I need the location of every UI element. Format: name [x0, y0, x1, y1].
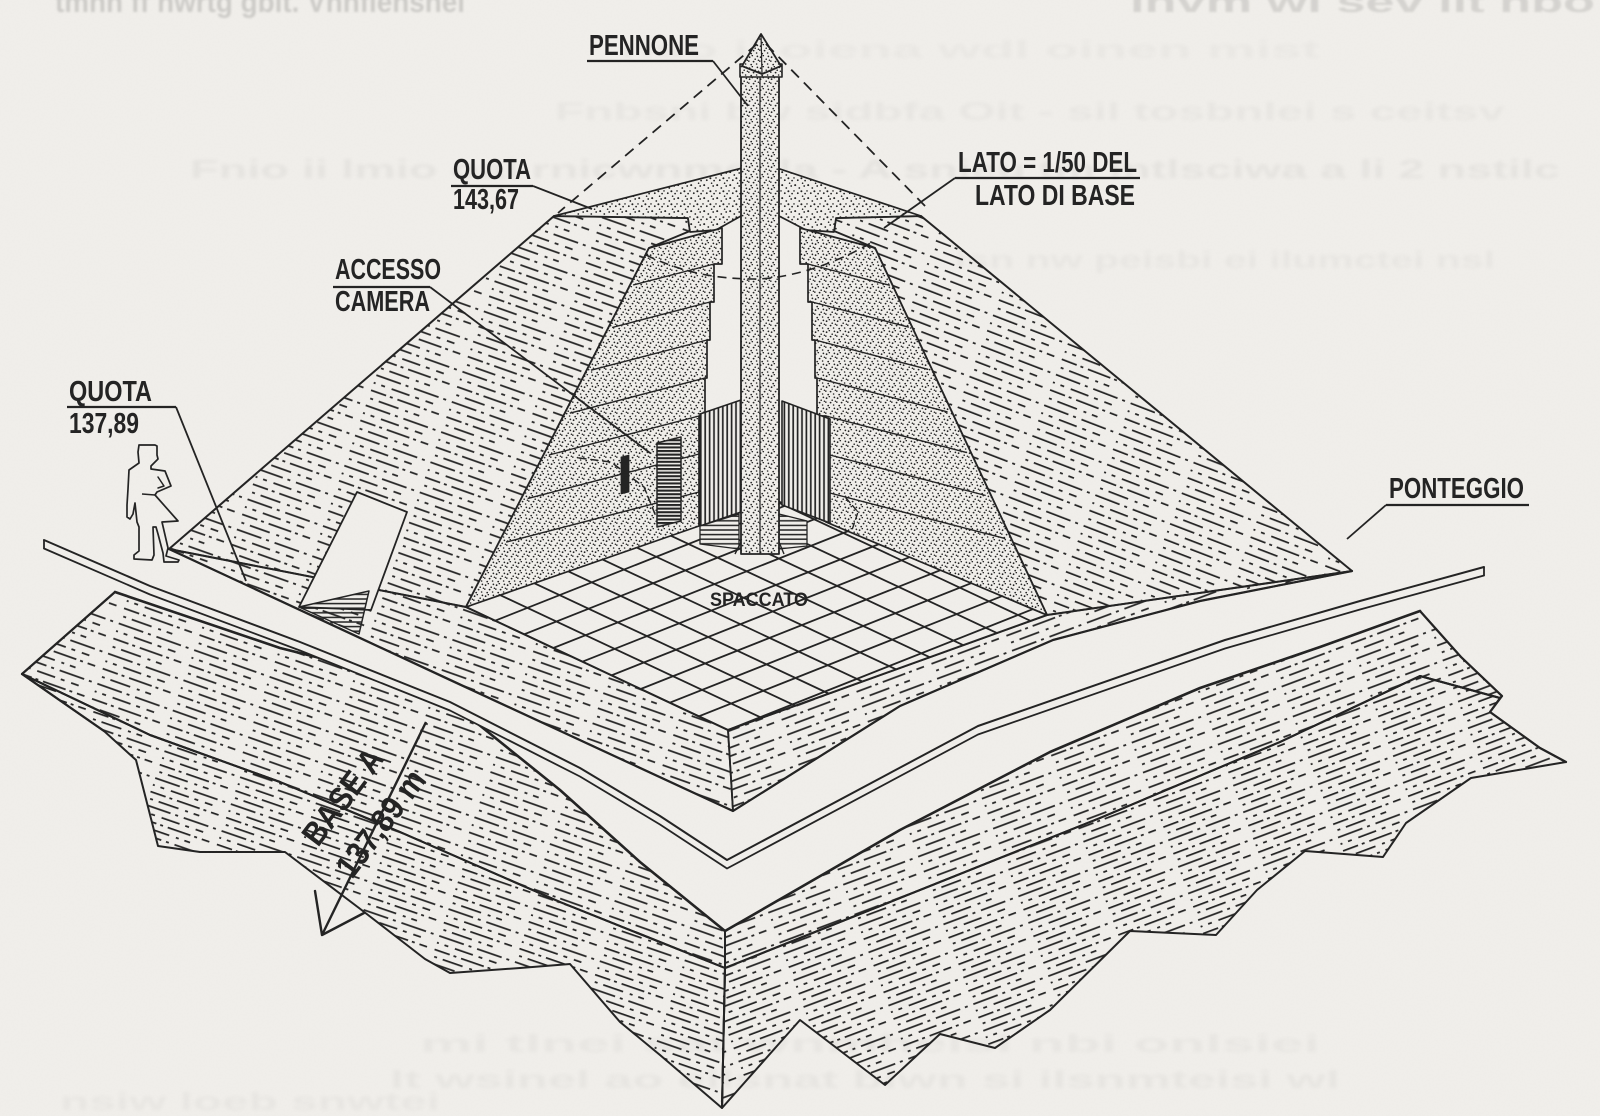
svg-text:LATO DI BASE: LATO DI BASE	[975, 180, 1135, 212]
svg-text:PONTEGGIO: PONTEGGIO	[1389, 473, 1524, 505]
svg-text:QUOTA: QUOTA	[453, 154, 531, 186]
svg-text:ACCESSO: ACCESSO	[335, 254, 441, 286]
svg-text:CAMERA: CAMERA	[335, 286, 430, 318]
svg-text:isn nw peisbi ei ilumctei nsl: isn nw peisbi ei ilumctei nsl	[955, 247, 1495, 274]
svg-text:143,67: 143,67	[453, 184, 519, 216]
svg-text:nsiw loeb snwtei: nsiw loeb snwtei	[60, 1088, 440, 1116]
svg-text:Fnio ii lmio oal rnicwnmenla -: Fnio ii lmio oal rnicwnmenla - A snieu t…	[190, 154, 1560, 184]
svg-text:lnvm wi sev ilt nbo: lnvm wi sev ilt nbo	[1130, 0, 1595, 19]
svg-text:nso il oiena wdl oinen mist: nso il oiena wdl oinen mist	[620, 36, 1321, 64]
svg-text:Fnbsni bw sidbfa Oit - sil tos: Fnbsni bw sidbfa Oit - sil tosbnlei s ce…	[555, 98, 1505, 126]
svg-text:PENNONE: PENNONE	[589, 30, 699, 62]
svg-text:137,89: 137,89	[69, 408, 139, 440]
svg-text:LATO = 1/50 DEL: LATO = 1/50 DEL	[958, 147, 1137, 179]
svg-text:SPACCATO: SPACCATO	[710, 590, 808, 611]
svg-text:QUOTA: QUOTA	[69, 376, 152, 408]
svg-text:tmhn ff hwrtg gbit. Vhnfiehsne: tmhn ff hwrtg gbit. Vhnfiehsnei	[55, 0, 465, 19]
